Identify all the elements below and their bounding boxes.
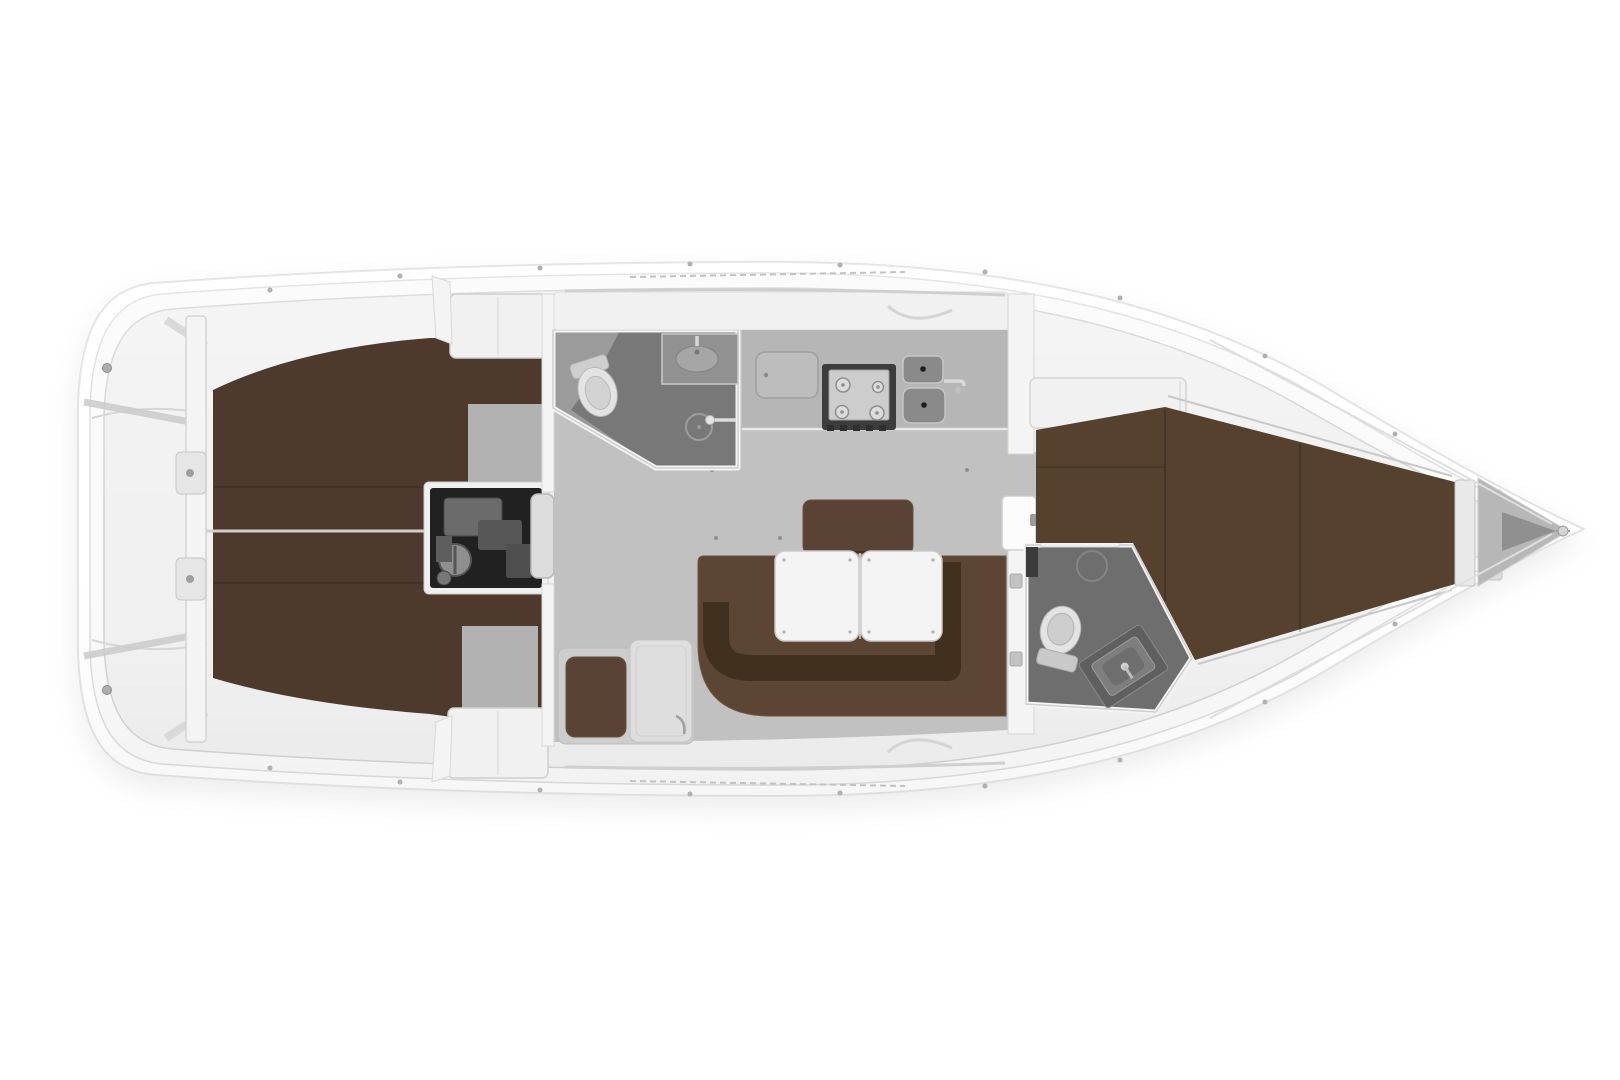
burner-dot <box>841 383 845 387</box>
burner-dot <box>876 385 880 389</box>
engine-pulley <box>437 571 451 585</box>
gimbal-tooth <box>853 425 860 431</box>
overhead-cabinet-band <box>554 292 1008 330</box>
shower-drain-dot <box>697 425 701 429</box>
aft-cabin-floor-top <box>468 404 542 484</box>
fwd-head-doorway <box>1026 547 1038 577</box>
aft-head-faucet-base <box>695 350 700 355</box>
burner-dot <box>840 410 844 414</box>
stern-cleat-top <box>103 364 112 373</box>
door-hinge <box>1010 652 1022 666</box>
burner-dot <box>875 411 879 415</box>
gimbal-tooth <box>866 425 873 431</box>
table-half-right <box>861 551 942 641</box>
floor-fastener <box>965 468 969 472</box>
door-hinge <box>1010 574 1022 588</box>
salon-aft-wall-lower <box>542 584 554 746</box>
refrigerator-handle <box>764 373 768 377</box>
engine-gearbox <box>506 544 532 578</box>
aft-cabin-floor-bottom <box>462 626 538 710</box>
gimbal-tooth <box>879 425 886 431</box>
transom-wall <box>186 316 206 742</box>
floor-fastener <box>778 536 782 540</box>
bow-fitting <box>1558 526 1568 536</box>
table-half-left <box>775 551 859 641</box>
stern-cleat-bottom <box>103 686 112 695</box>
latch-knob-top <box>186 469 194 477</box>
engine-pump <box>436 536 452 562</box>
gimbal-tooth <box>840 425 847 431</box>
berth-foot-board <box>1455 480 1475 586</box>
sink-drain <box>920 366 926 372</box>
salon-step-module <box>630 640 692 742</box>
floor-fastener <box>714 536 718 540</box>
fwd-bulkhead-upper <box>1008 294 1034 454</box>
engine-compartment <box>424 482 548 594</box>
galley-faucet-base <box>955 387 961 393</box>
latch-knob-bottom <box>186 575 194 583</box>
sink-drain <box>921 402 927 408</box>
companionway-seat <box>566 657 626 737</box>
settee-backrest-head <box>803 500 913 554</box>
gimbal-tooth <box>827 425 834 431</box>
step-1 <box>531 494 554 578</box>
shower-mixer-knob <box>706 416 715 425</box>
yacht-floor-plan <box>0 0 1620 1080</box>
